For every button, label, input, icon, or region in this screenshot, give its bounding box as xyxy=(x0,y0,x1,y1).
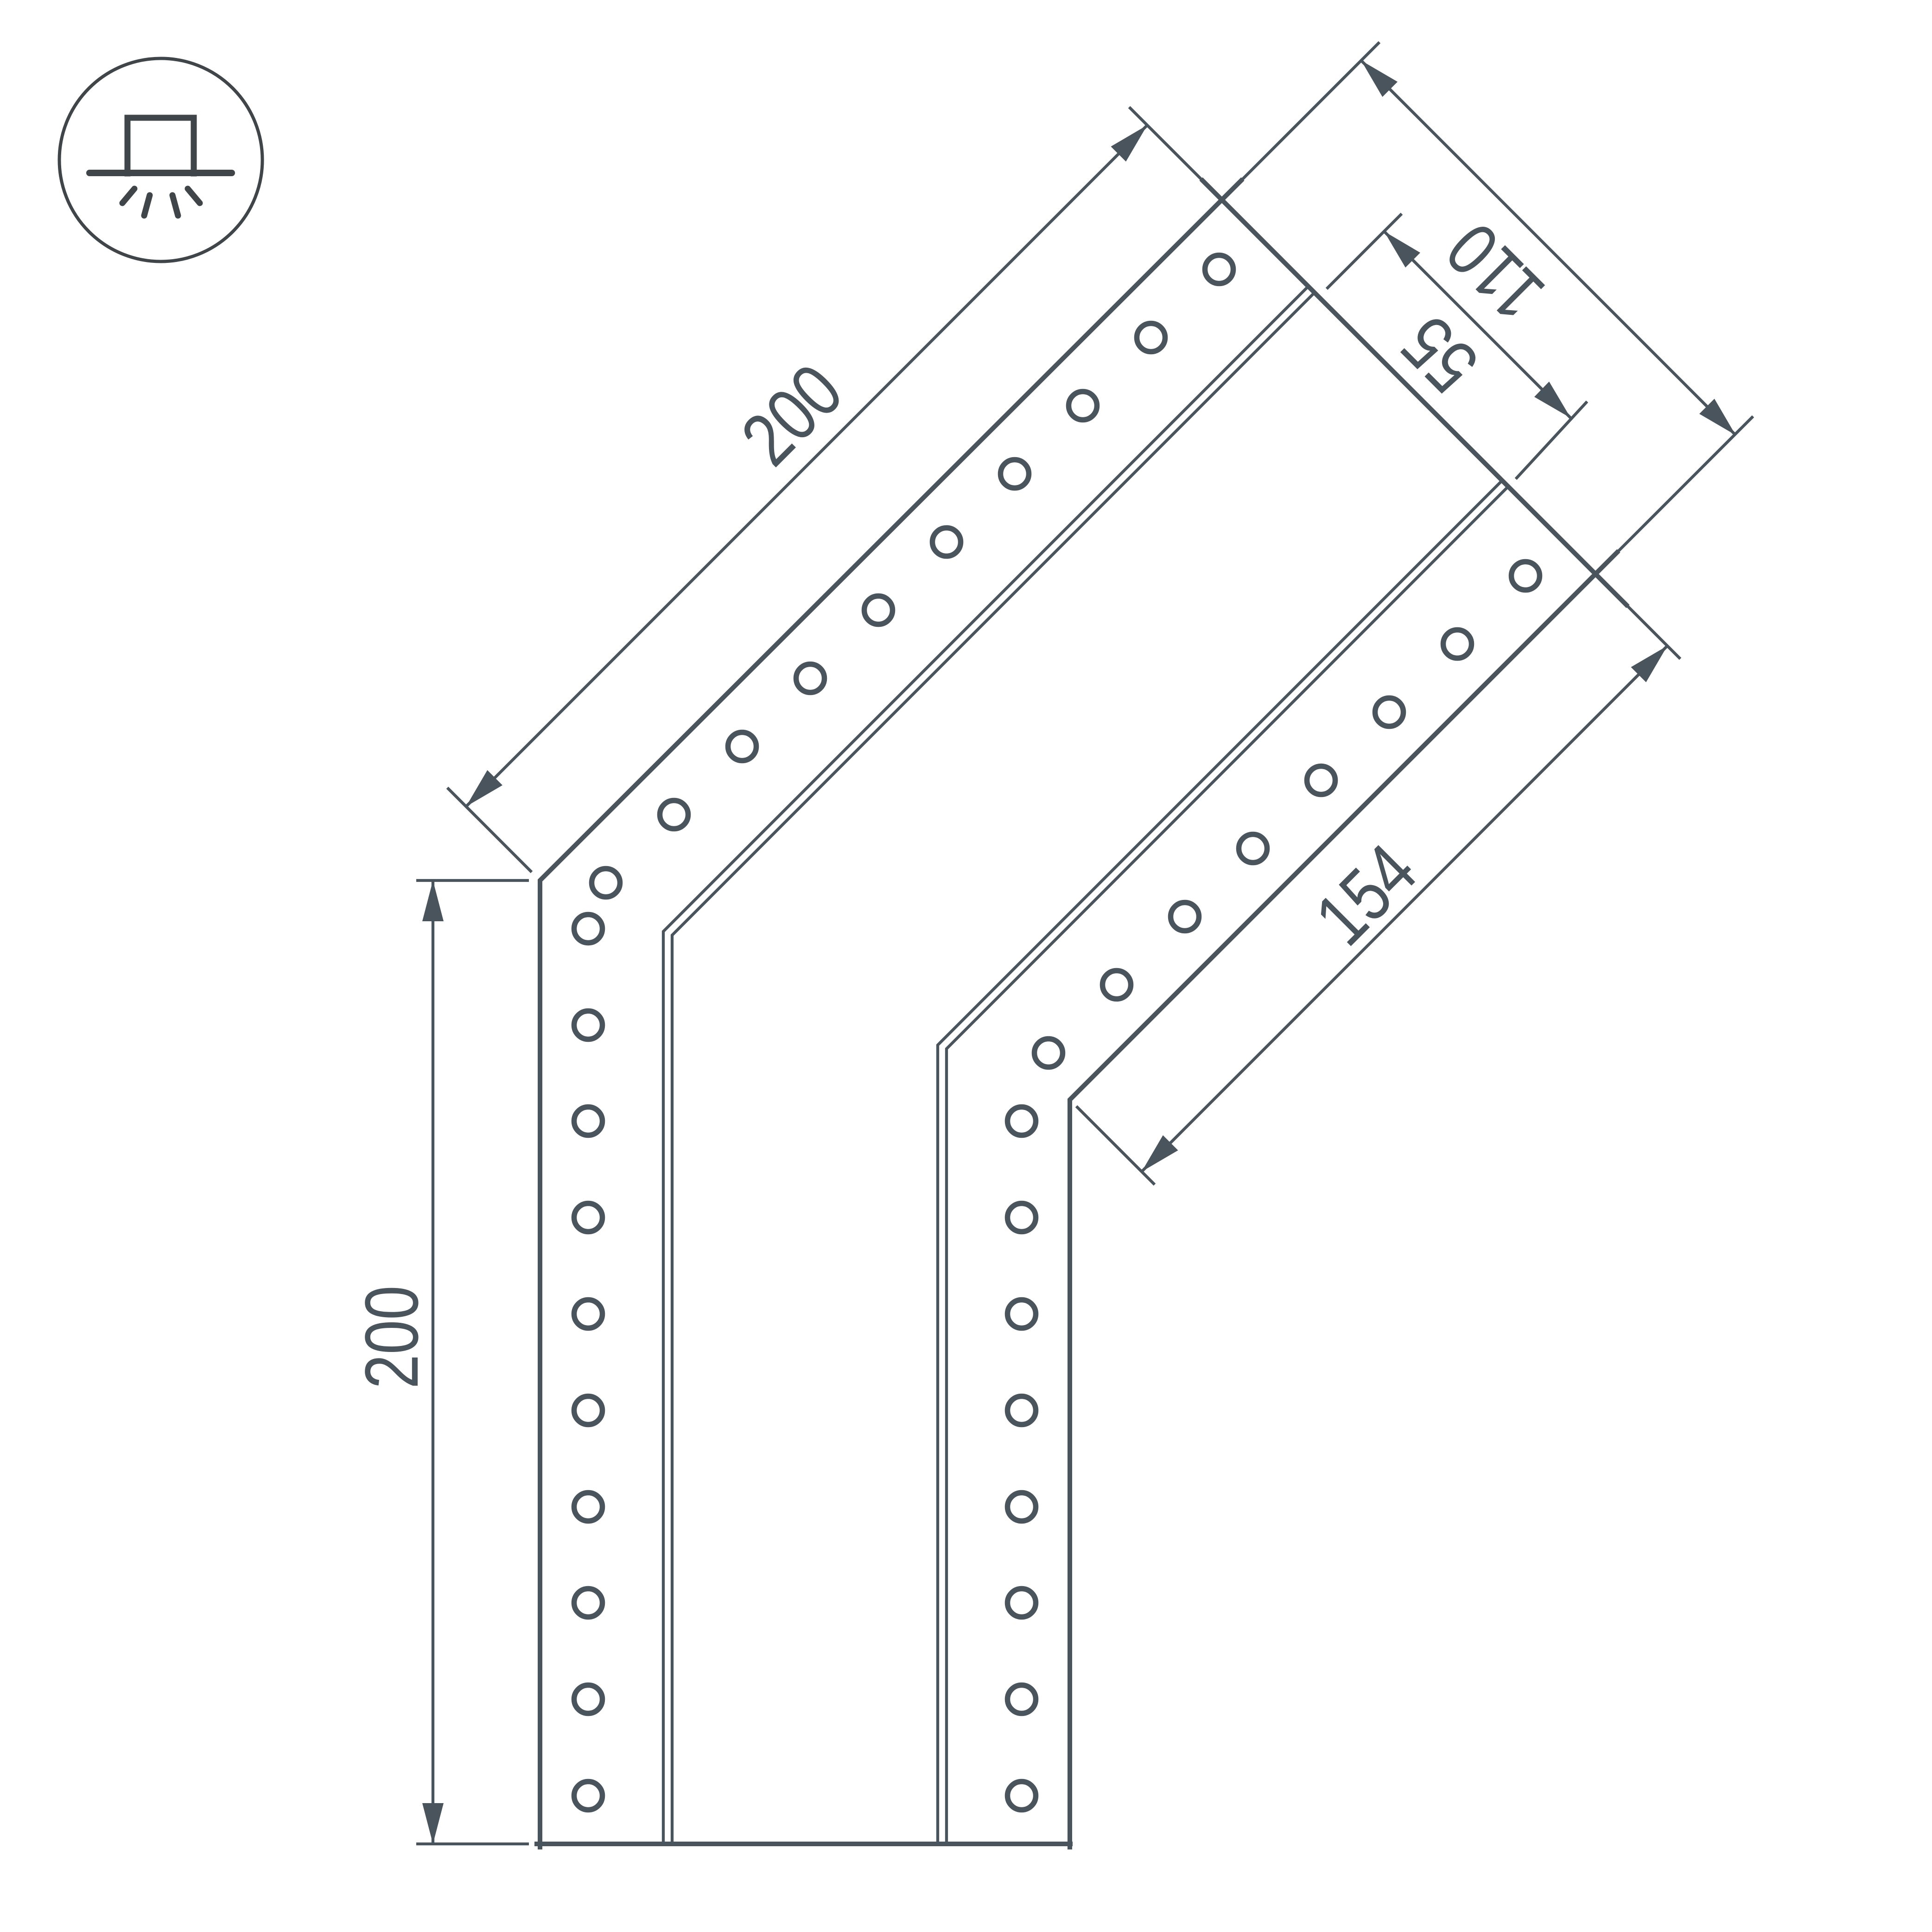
svg-text:200: 200 xyxy=(349,1285,434,1389)
